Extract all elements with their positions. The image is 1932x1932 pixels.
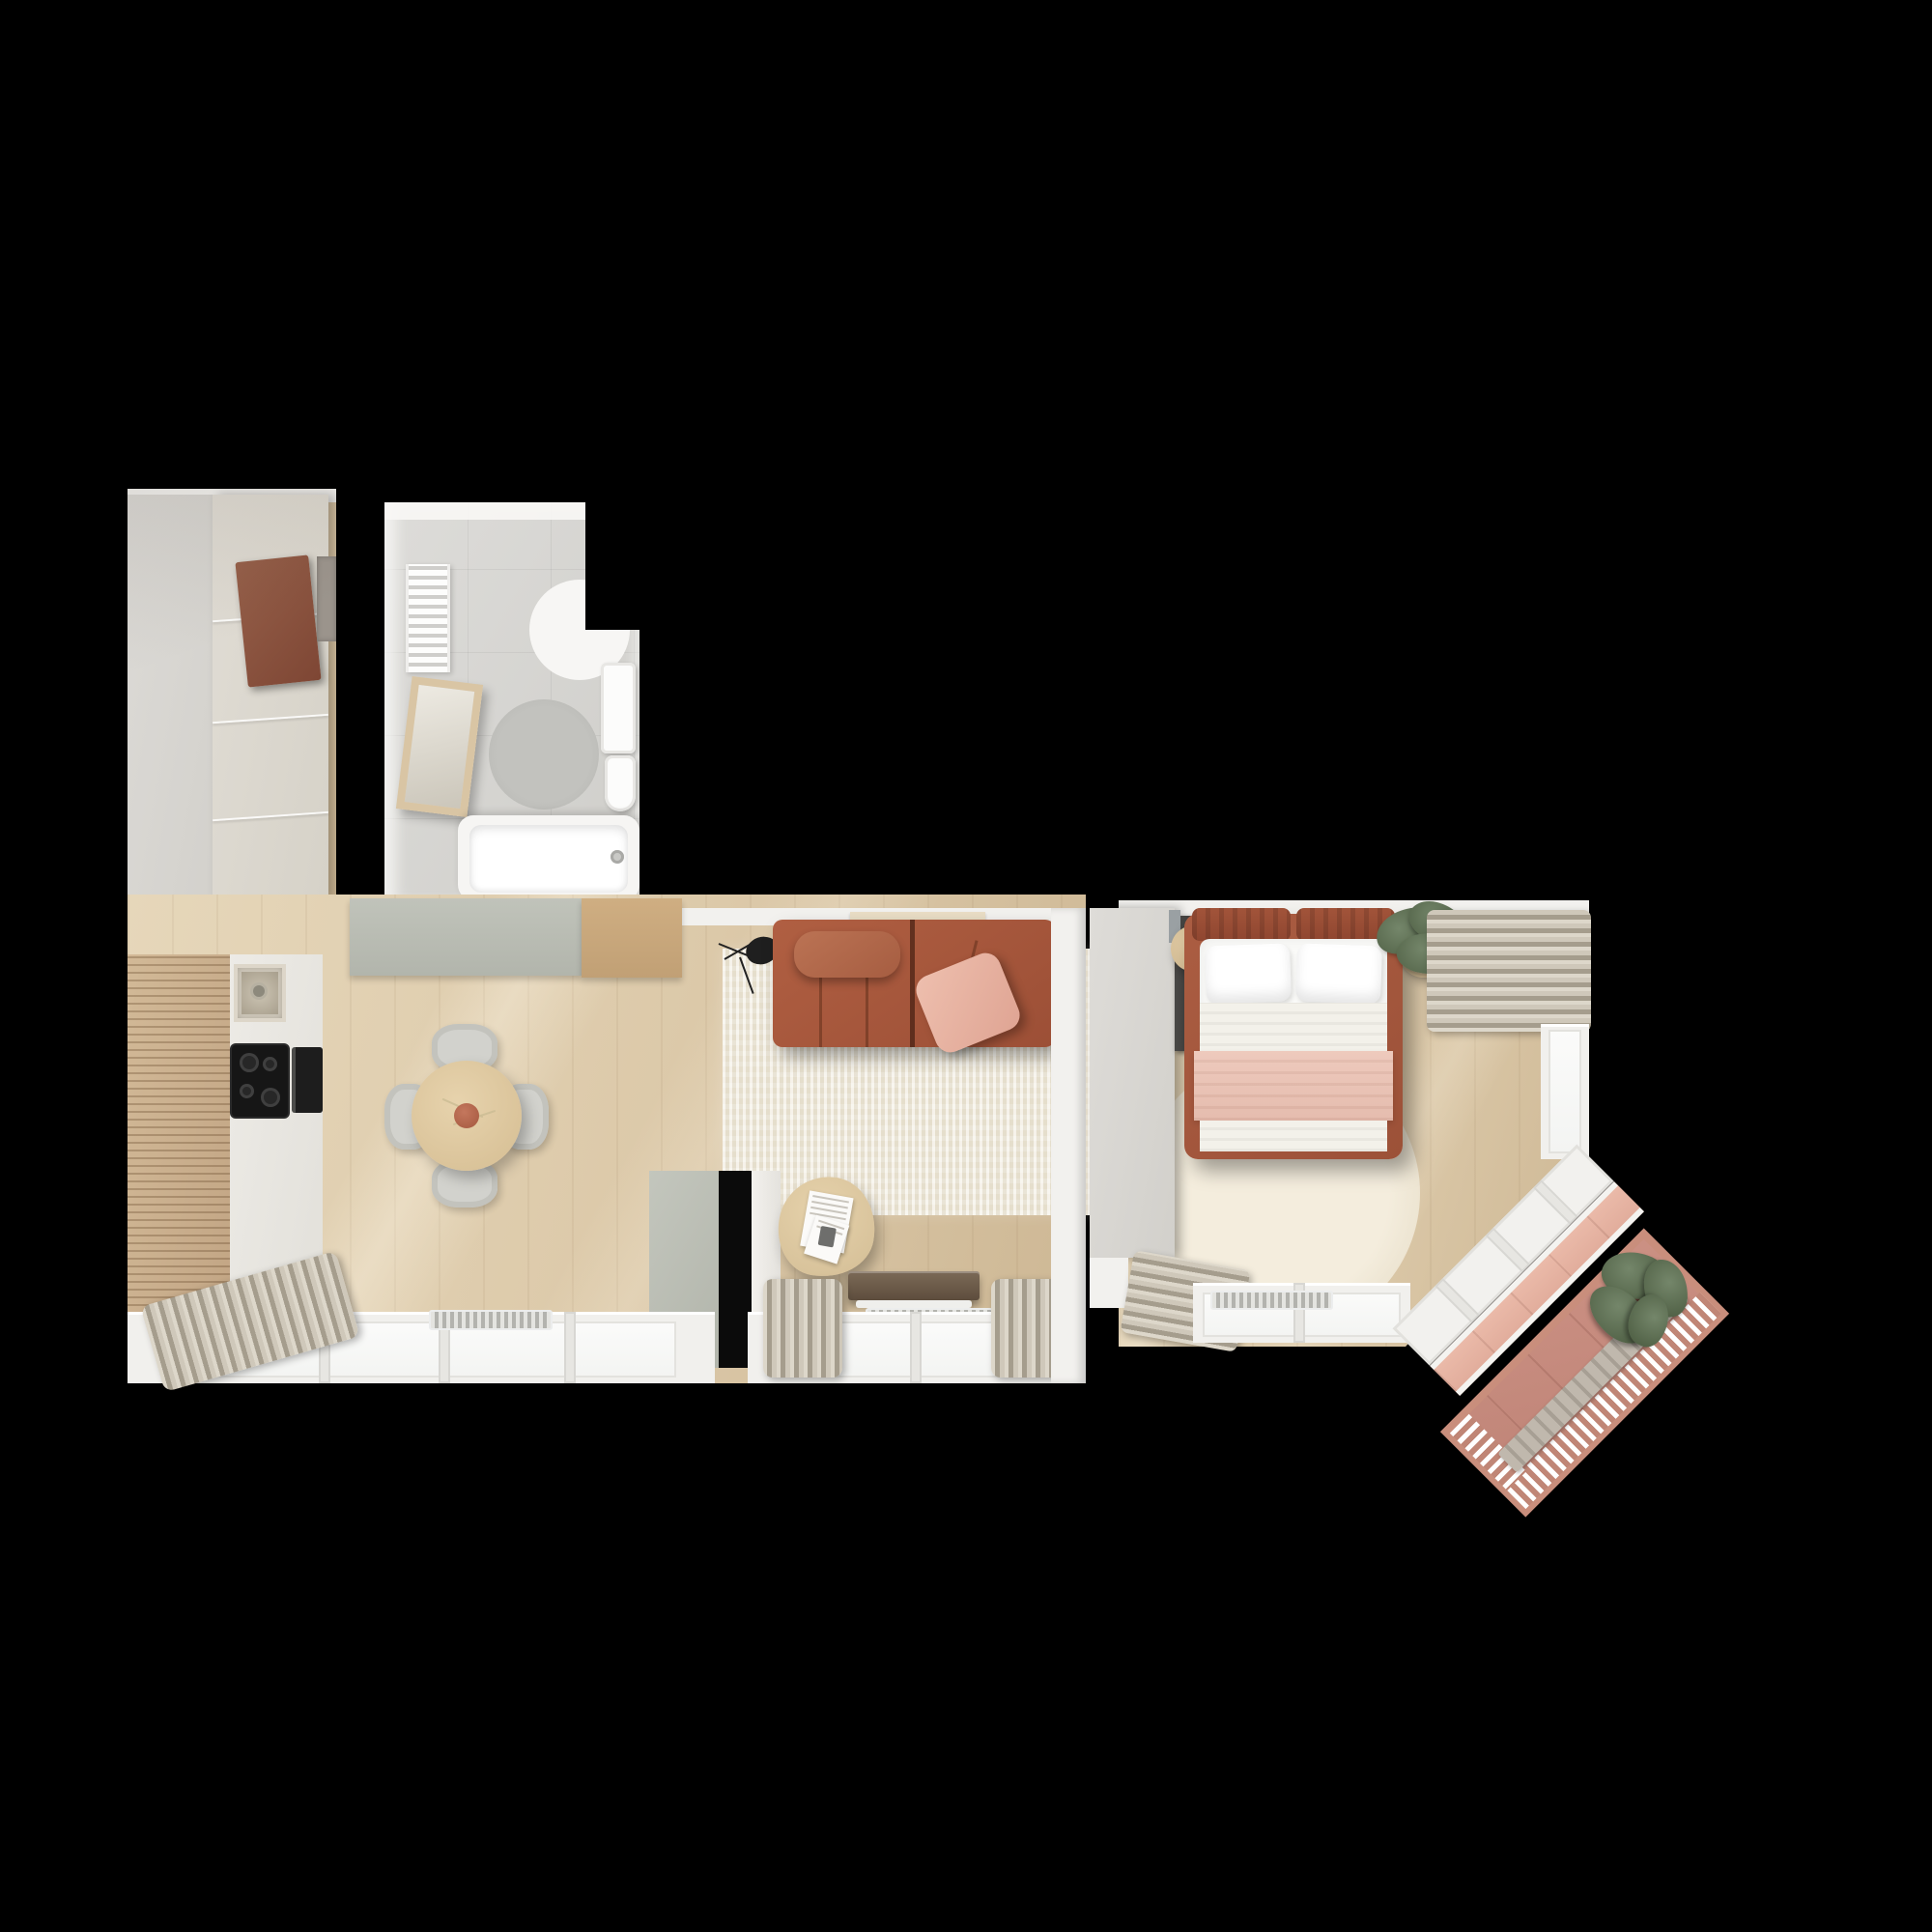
partition-tv-panel — [719, 1171, 752, 1368]
bedroom-radiator — [1210, 1291, 1333, 1310]
bedroom-window-right — [1541, 1024, 1589, 1159]
hall-wardrobe — [213, 495, 328, 900]
oven — [292, 1047, 323, 1113]
bedroom-closet — [1090, 908, 1175, 1258]
table-vase — [454, 1103, 479, 1128]
room-bathroom — [384, 502, 639, 902]
entry-doormat — [317, 556, 336, 641]
dining-table — [412, 1061, 522, 1171]
kitchen-counter-wood — [582, 898, 682, 978]
sofa-headrest — [794, 931, 900, 978]
bed-duvet — [1200, 1003, 1387, 1057]
bathroom-round-rug — [489, 699, 599, 810]
bedroom-door-wall-cap — [1090, 1258, 1128, 1308]
media-bench — [848, 1271, 980, 1300]
sofa — [773, 920, 1055, 1047]
hall-side-cabinet — [128, 495, 213, 904]
bed-pillow-left — [1205, 943, 1292, 1004]
bed-sheet-end — [1200, 1121, 1387, 1151]
washbasin-cabinet — [601, 663, 636, 753]
bedroom-curtain-top-right — [1427, 910, 1591, 1032]
bed-headboard — [1192, 908, 1291, 941]
leaning-mirror — [396, 676, 483, 817]
cooktop — [232, 1045, 288, 1117]
kitchen-sink — [234, 964, 286, 1022]
bathtub — [458, 815, 639, 900]
kitchen-counter-gray — [350, 898, 582, 976]
bathroom-wall-notch — [585, 502, 639, 630]
bed-pillow-right — [1295, 943, 1382, 1004]
bedroom-window-bottom — [1193, 1283, 1410, 1343]
remote-control — [818, 1226, 837, 1247]
room-entry-hall — [128, 489, 336, 951]
floorplan-render — [0, 0, 1932, 1932]
sofa-pink-cushion — [912, 949, 1025, 1057]
toilet — [605, 755, 636, 811]
bed-pink-blanket — [1194, 1051, 1393, 1121]
entrance-door — [235, 554, 321, 687]
living-right-wall — [1051, 908, 1086, 1383]
room-open-living — [128, 895, 1086, 1383]
living-curtain-left — [763, 1279, 842, 1378]
media-bench-base — [856, 1300, 972, 1308]
towel-radiator — [406, 564, 450, 672]
bathtub-faucet-icon — [611, 850, 624, 864]
kitchen-window-radiator — [429, 1310, 553, 1330]
double-bed — [1184, 914, 1403, 1159]
